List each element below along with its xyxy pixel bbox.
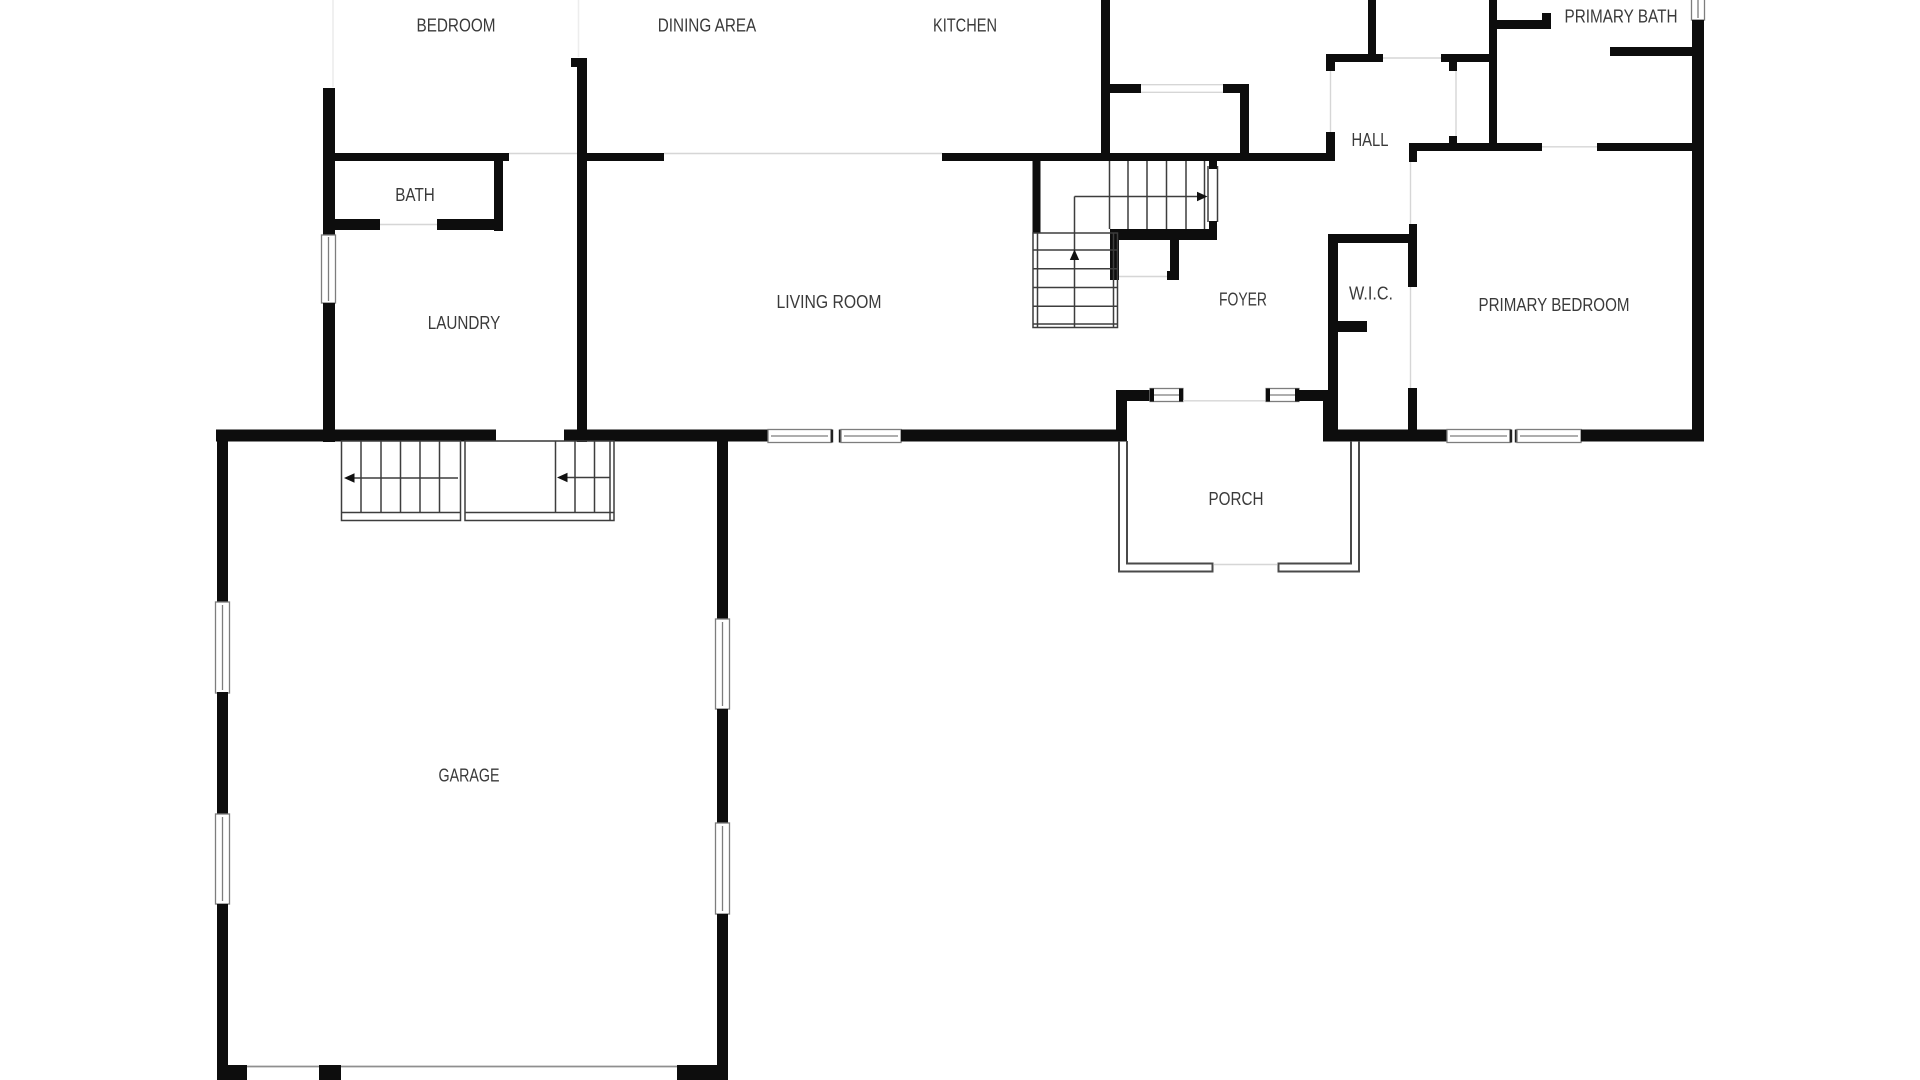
svg-text:PRIMARY BEDROOM: PRIMARY BEDROOM [1479, 294, 1630, 315]
svg-text:LAUNDRY: LAUNDRY [428, 312, 501, 333]
svg-text:BATH: BATH [395, 184, 435, 205]
svg-text:PRIMARY BATH: PRIMARY BATH [1565, 6, 1678, 27]
svg-text:KITCHEN: KITCHEN [933, 15, 997, 36]
svg-text:PORCH: PORCH [1209, 488, 1264, 509]
svg-text:HALL: HALL [1352, 129, 1389, 150]
svg-text:W.I.C.: W.I.C. [1349, 283, 1393, 304]
svg-text:GARAGE: GARAGE [439, 765, 500, 786]
svg-text:LIVING ROOM: LIVING ROOM [777, 291, 882, 312]
svg-text:FOYER: FOYER [1219, 289, 1267, 310]
svg-text:DINING AREA: DINING AREA [658, 15, 757, 36]
svg-text:BEDROOM: BEDROOM [417, 15, 496, 36]
